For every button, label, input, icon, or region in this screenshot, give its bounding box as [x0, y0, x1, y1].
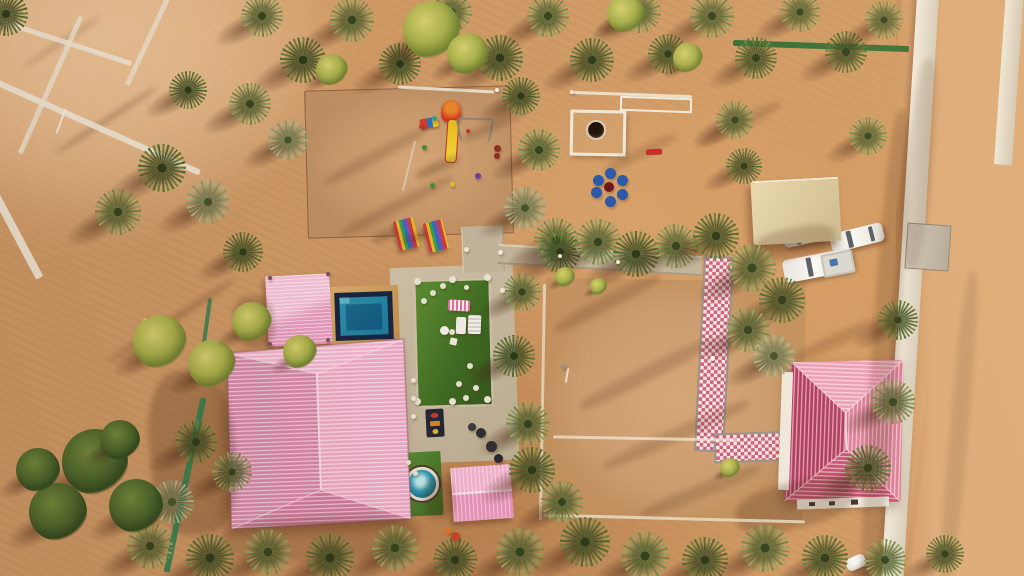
patio-table	[440, 326, 449, 335]
pool-inner	[346, 303, 383, 330]
doormat	[425, 409, 444, 438]
post	[616, 260, 620, 264]
post	[500, 288, 505, 293]
toy	[430, 183, 435, 188]
stepping-stone	[430, 290, 436, 296]
palm-tree	[493, 335, 535, 377]
car-rear-window	[868, 226, 876, 242]
palm-tree	[726, 148, 762, 184]
baluster	[449, 398, 456, 405]
stepping-stone	[440, 283, 446, 289]
gazebo-post	[268, 276, 272, 280]
stepping-stone	[413, 471, 418, 476]
bush	[447, 33, 489, 75]
toy	[422, 145, 427, 150]
stepping-stone	[463, 395, 469, 401]
ground-line	[646, 149, 662, 156]
blue-seat	[591, 187, 602, 198]
palm-tree	[871, 380, 915, 424]
person	[570, 90, 574, 94]
goal-frame	[620, 96, 692, 114]
toy	[419, 124, 424, 129]
gazebo-post	[326, 338, 330, 342]
stepping-stone	[473, 385, 479, 391]
palm-tree	[690, 0, 734, 38]
doormat-art	[432, 429, 438, 434]
palm-tree	[223, 232, 263, 272]
baluster	[411, 414, 416, 419]
toy	[494, 153, 500, 159]
palm-tree	[865, 1, 903, 39]
main-building-roof	[217, 333, 420, 536]
leafy-tree	[109, 479, 163, 533]
bush	[590, 278, 607, 295]
leafy-tree	[16, 448, 60, 492]
bush	[232, 302, 272, 342]
bush	[283, 335, 317, 369]
stepping-stone	[456, 381, 462, 387]
ground-line	[202, 298, 212, 344]
truck-cargo	[829, 258, 838, 266]
palm-tree	[845, 445, 891, 491]
toy	[450, 182, 455, 187]
grill	[486, 441, 497, 452]
person	[710, 356, 715, 361]
cart	[445, 528, 451, 534]
palm-tree	[780, 0, 820, 32]
baluster	[411, 378, 416, 383]
palm-tree	[753, 335, 795, 377]
bush	[555, 267, 575, 287]
palm-tree	[527, 0, 569, 37]
palm-tree	[502, 77, 540, 115]
post	[558, 254, 562, 258]
palm-tree	[169, 71, 207, 109]
swing-seat	[466, 129, 470, 133]
blue-seat	[593, 175, 604, 186]
leafy-tree	[100, 420, 140, 460]
blue-seat	[617, 189, 628, 200]
palm-tree	[503, 273, 541, 311]
palm-tree	[741, 524, 789, 572]
palm-tree	[878, 300, 918, 340]
grill	[494, 454, 503, 463]
palm-tree	[541, 481, 583, 523]
post	[464, 247, 469, 252]
palm-tree	[268, 120, 308, 160]
palm-tree	[229, 83, 271, 125]
palm-tree	[560, 517, 610, 567]
aerial-photo	[0, 0, 1024, 576]
lounger-white-1	[456, 317, 467, 334]
palm-tree	[504, 187, 546, 229]
palm-tree	[330, 0, 374, 42]
toy	[475, 173, 481, 179]
doormat-art	[430, 413, 438, 418]
blue-seat	[617, 175, 628, 186]
pool-step	[339, 298, 349, 304]
grill	[468, 423, 476, 431]
palm-tree	[759, 277, 805, 323]
patio-chair	[449, 337, 457, 345]
palm-tree	[95, 189, 141, 235]
palm-tree	[506, 402, 550, 446]
well-mouth	[586, 120, 606, 140]
grill	[476, 428, 486, 438]
gazebo-post	[268, 342, 272, 346]
bush	[133, 315, 187, 369]
gazebo-post	[326, 272, 330, 276]
palm-tree	[693, 213, 739, 259]
bush	[720, 458, 740, 478]
fire-pit	[604, 182, 614, 192]
cart	[451, 532, 460, 541]
baluster	[414, 278, 421, 285]
doormat-art	[430, 421, 440, 427]
stepping-stone	[449, 329, 455, 335]
palm-tree	[186, 180, 230, 224]
baluster	[449, 276, 456, 283]
palm-tree	[175, 421, 217, 463]
baluster	[411, 396, 416, 401]
post	[498, 250, 503, 255]
person	[495, 88, 499, 92]
palm-tree	[926, 535, 964, 573]
well-enclosure	[570, 110, 627, 157]
truck-windshield	[805, 257, 814, 277]
toy	[432, 116, 437, 121]
post	[464, 285, 469, 290]
palm-tree	[372, 525, 418, 571]
stepping-stone	[421, 298, 427, 304]
baluster	[484, 396, 491, 403]
palm-tree	[518, 129, 560, 171]
car-windshield	[845, 230, 854, 248]
blue-seat	[605, 168, 616, 179]
bush	[673, 43, 703, 73]
flag	[561, 364, 566, 369]
toy	[494, 145, 501, 152]
palm-tree	[212, 452, 252, 492]
blue-seat	[605, 196, 616, 207]
pool-water	[339, 296, 388, 336]
bush	[316, 54, 348, 86]
stepping-stone	[406, 460, 411, 465]
lounger-pink	[448, 299, 471, 311]
stepping-stone	[467, 363, 473, 369]
palm-tree	[138, 144, 186, 192]
truck-bed	[820, 249, 856, 278]
baluster	[484, 274, 491, 281]
palm-tree	[716, 101, 754, 139]
palm-tree	[849, 117, 887, 155]
